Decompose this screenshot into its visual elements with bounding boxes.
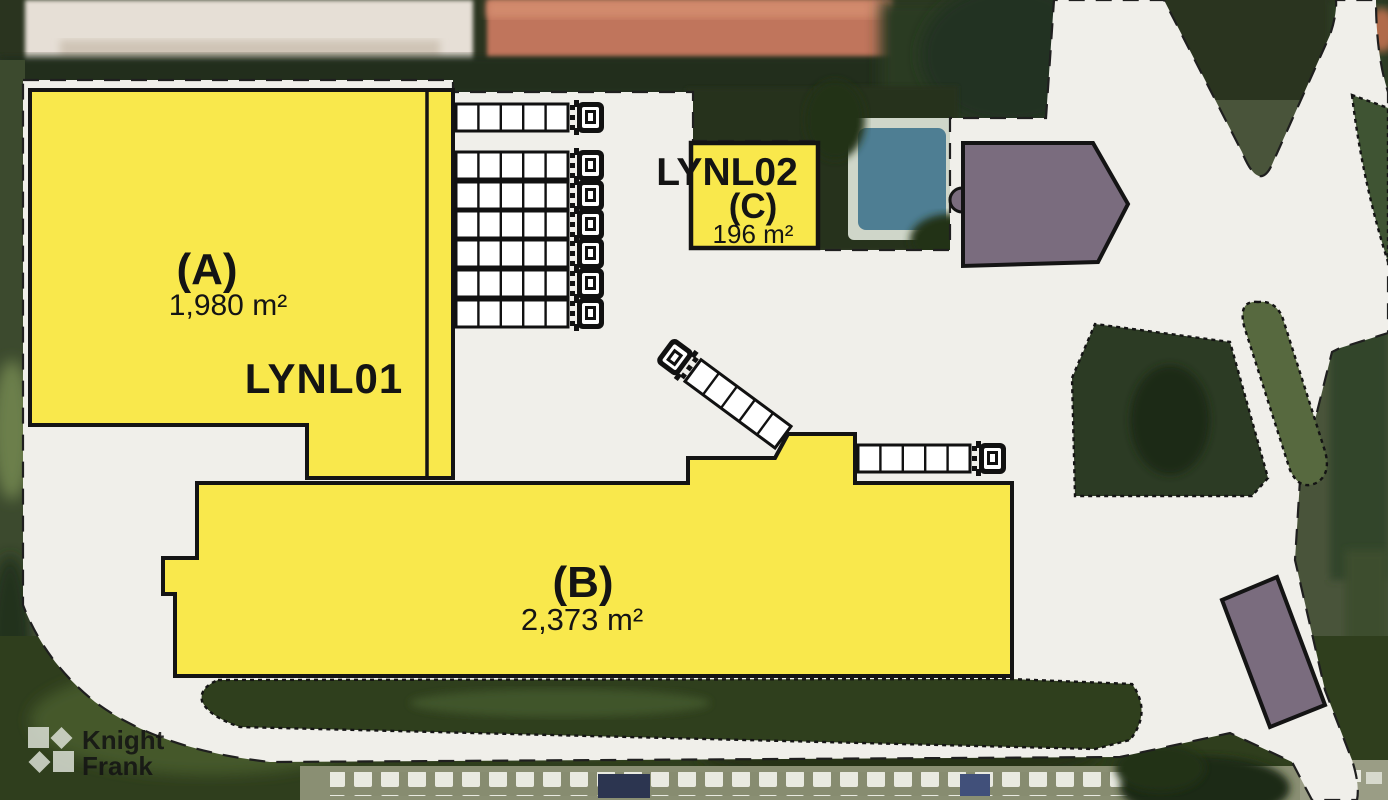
grass-highlight (410, 689, 710, 717)
truck-icon (456, 207, 604, 242)
unit-a-area: 1,980 m² (169, 289, 287, 322)
unit-a-scheme-code: LYNL01 (245, 355, 404, 402)
truck-icon (456, 266, 604, 301)
unit-a-label: (A) (176, 245, 237, 294)
unit-b-label: (B) (552, 558, 613, 607)
unit-a: (A) 1,980 m² LYNL01 (30, 90, 453, 478)
unit-c-area: 196 m² (713, 219, 794, 249)
site-plan-canvas: (A) 1,980 m² LYNL01 (B) 2,373 m² LYNL02 … (0, 0, 1388, 800)
truck-icon (456, 296, 604, 331)
truck-icon (858, 441, 1006, 476)
truck-icon (456, 236, 604, 271)
truck-icon (456, 178, 604, 213)
truck-icon (456, 148, 604, 183)
pentagon-building (963, 143, 1128, 266)
unit-a-footprint (30, 90, 453, 478)
tree-shadow (1130, 365, 1210, 475)
swimming-pool (858, 128, 946, 230)
truck-icon (456, 100, 604, 135)
knight-frank-wordmark-line2: Frank (82, 751, 153, 781)
unit-b-area: 2,373 m² (521, 602, 643, 637)
